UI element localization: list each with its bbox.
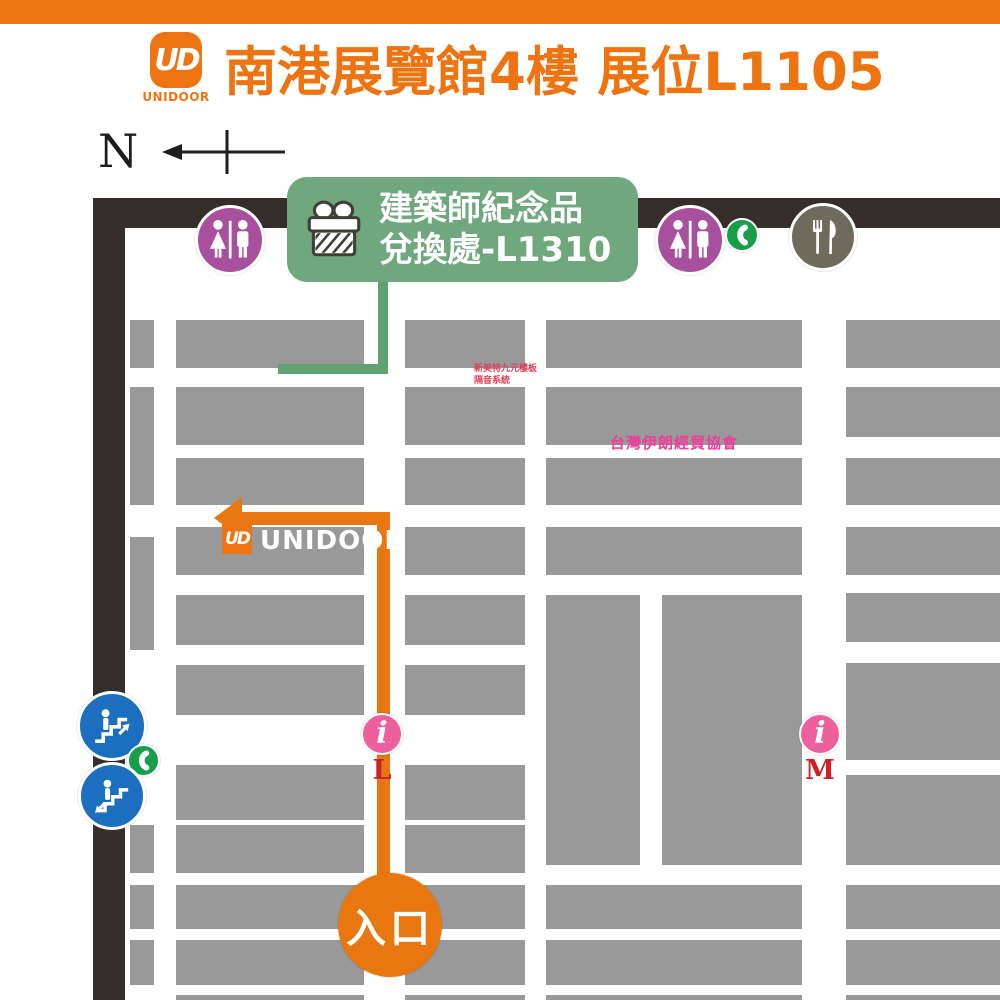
entrance-label: 入口 xyxy=(346,896,434,954)
unidoor-booth-label: UNIDOOR xyxy=(260,526,405,556)
booth xyxy=(176,665,364,715)
vendor-label: 新美特九元樓板 隔音系統 xyxy=(474,364,537,387)
booth xyxy=(846,995,1000,1000)
booth xyxy=(662,595,802,865)
booth xyxy=(405,995,525,1000)
booth xyxy=(405,825,525,873)
booth xyxy=(176,320,364,368)
route-vertical xyxy=(377,517,390,875)
logo-monogram: UD xyxy=(154,43,197,78)
booth xyxy=(176,885,364,929)
gift-route-vertical xyxy=(378,275,388,370)
booth xyxy=(546,885,802,929)
booth xyxy=(405,665,525,715)
info-glyph: i xyxy=(814,719,825,749)
escalator-down-icon xyxy=(78,762,146,830)
unidoor-logo-icon: UD xyxy=(150,32,202,88)
gift-route-horizontal xyxy=(278,364,388,374)
booth xyxy=(846,775,1000,865)
booth xyxy=(405,595,525,645)
booth xyxy=(130,825,154,873)
booth xyxy=(176,458,364,505)
booth xyxy=(176,595,364,645)
restroom-icon xyxy=(195,205,265,275)
entrance-marker: 入口 xyxy=(338,873,442,977)
booth xyxy=(846,663,1000,760)
booth xyxy=(130,885,154,929)
booth xyxy=(130,537,154,650)
booth xyxy=(176,940,364,985)
route-horizontal xyxy=(238,512,390,525)
unidoor-booth-logo-icon: UD xyxy=(222,524,252,554)
unidoor-booth-monogram: UD xyxy=(225,529,249,549)
booth xyxy=(176,995,364,1000)
booth xyxy=(546,595,640,865)
booth xyxy=(846,320,1000,368)
info-glyph: i xyxy=(376,719,387,749)
wall-left xyxy=(93,198,125,1000)
vendor-label: 台灣伊朗經貿協會 xyxy=(610,432,738,453)
info-marker-m-icon: i xyxy=(799,713,841,755)
top-bar xyxy=(0,0,1000,24)
booth xyxy=(130,320,154,368)
booth xyxy=(130,387,154,505)
compass-arrow-icon xyxy=(150,122,300,182)
booth xyxy=(846,387,1000,437)
compass-north-label: N xyxy=(98,124,138,178)
phone-icon xyxy=(725,218,759,252)
booth xyxy=(846,593,1000,642)
booth xyxy=(846,885,1000,929)
booth xyxy=(405,458,525,505)
gift-banner-line2: 兌換處-L1310 xyxy=(379,230,611,270)
gift-icon xyxy=(301,197,367,263)
booth xyxy=(130,940,154,985)
info-marker-l-icon: i xyxy=(361,713,403,755)
booth xyxy=(176,765,364,820)
booth xyxy=(546,995,802,1000)
booth xyxy=(405,387,525,445)
booth xyxy=(405,320,525,368)
page-title: 南港展覽館4樓 展位L1105 xyxy=(224,30,1000,106)
gift-banner: 建築師紀念品 兌換處-L1310 xyxy=(287,177,638,282)
booth xyxy=(176,825,364,873)
info-marker-l-letter: L xyxy=(361,755,403,786)
info-marker-m-letter: M xyxy=(799,755,841,786)
gift-banner-line1: 建築師紀念品 xyxy=(379,189,611,229)
booth xyxy=(405,527,525,575)
logo-caption: UNIDOOR xyxy=(136,90,216,104)
map-canvas: UD UNIDOOR 南港展覽館4樓 展位L1105 N 建築師紀念品 xyxy=(0,0,1000,1000)
restroom-icon xyxy=(655,205,725,275)
booth xyxy=(405,765,525,820)
booth xyxy=(546,527,802,575)
booth xyxy=(846,527,1000,575)
booth xyxy=(546,940,802,985)
booth xyxy=(546,320,802,368)
booth xyxy=(846,940,1000,985)
booth xyxy=(846,458,1000,505)
booth xyxy=(176,387,364,445)
restaurant-icon xyxy=(789,203,857,271)
booth xyxy=(546,458,802,505)
